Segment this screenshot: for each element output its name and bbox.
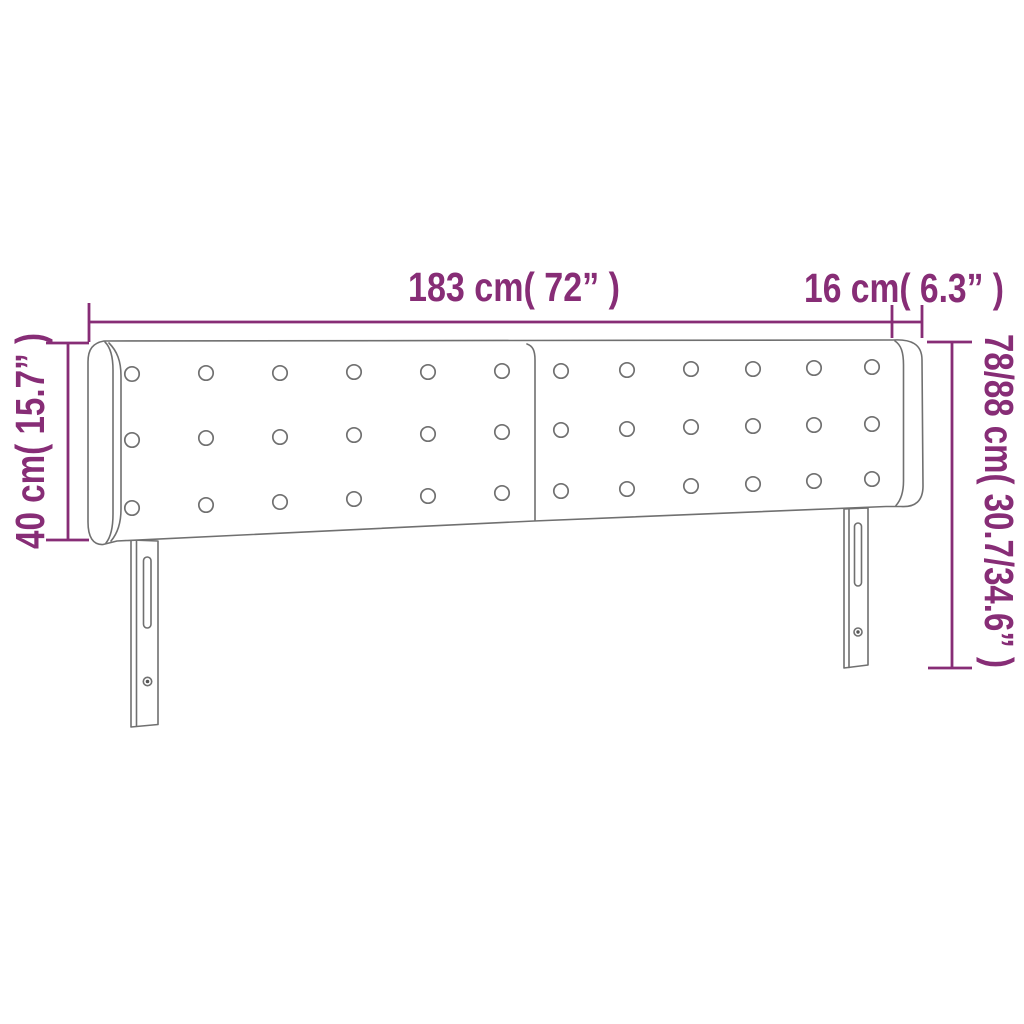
button — [684, 479, 698, 493]
headboard-height-label: 40 cm( 15.7” ) — [7, 333, 53, 549]
button — [495, 425, 509, 439]
button — [199, 431, 213, 445]
button — [746, 419, 760, 433]
button — [807, 418, 821, 432]
button — [421, 365, 435, 379]
right-leg-hole-center — [856, 630, 859, 633]
button — [684, 420, 698, 434]
button — [620, 482, 634, 496]
button — [807, 474, 821, 488]
button — [199, 498, 213, 512]
button — [865, 472, 879, 486]
total-height-label: 78/88 cm( 30.7/34.6” ) — [976, 334, 1022, 668]
wing-depth-label: 16 cm( 6.3” ) — [804, 265, 1004, 311]
right-leg-outline — [844, 508, 868, 668]
button — [620, 422, 634, 436]
button — [495, 486, 509, 500]
button — [347, 492, 361, 506]
right-leg — [844, 508, 868, 668]
button — [620, 363, 634, 377]
button — [807, 361, 821, 375]
button — [421, 427, 435, 441]
button — [273, 366, 287, 380]
button — [347, 428, 361, 442]
button — [554, 423, 568, 437]
button — [684, 362, 698, 376]
button — [199, 366, 213, 380]
headboard-dimension-diagram: 183 cm( 72” ) 16 cm( 6.3” ) 40 cm( 15.7”… — [0, 0, 1024, 1024]
button — [865, 360, 879, 374]
button — [125, 433, 139, 447]
button — [495, 364, 509, 378]
button — [125, 367, 139, 381]
button — [554, 484, 568, 498]
diagram-page: 183 cm( 72” ) 16 cm( 6.3” ) 40 cm( 15.7”… — [0, 0, 1024, 1024]
button — [273, 430, 287, 444]
button — [554, 364, 568, 378]
button — [746, 362, 760, 376]
button — [273, 495, 287, 509]
left-leg — [131, 540, 158, 727]
button — [125, 501, 139, 515]
button — [347, 365, 361, 379]
left-leg-outline — [131, 540, 158, 727]
width-label: 183 cm( 72” ) — [408, 264, 620, 310]
left-leg-hole-center — [146, 680, 150, 684]
button — [865, 417, 879, 431]
button — [746, 477, 760, 491]
button — [421, 489, 435, 503]
